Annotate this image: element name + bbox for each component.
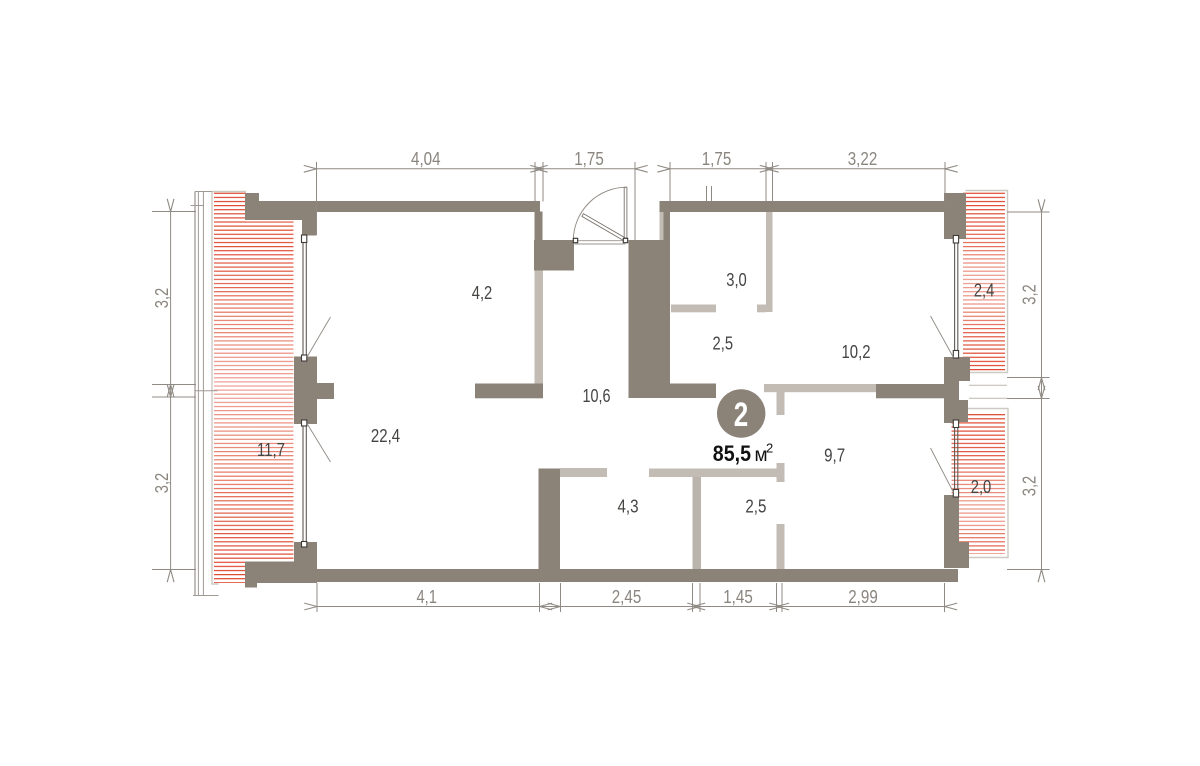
svg-text:4,2: 4,2 [472,282,493,303]
svg-text:2,0: 2,0 [971,476,992,497]
svg-text:4,3: 4,3 [618,496,639,517]
svg-text:85,5: 85,5 [713,441,751,466]
svg-text:3,22: 3,22 [848,148,878,169]
svg-text:1,45: 1,45 [723,586,753,607]
svg-text:3,2: 3,2 [151,473,172,494]
svg-text:9,7: 9,7 [824,445,845,466]
svg-text:10,6: 10,6 [583,385,611,406]
svg-text:11,7: 11,7 [257,439,285,460]
svg-text:3,2: 3,2 [151,288,172,309]
svg-text:2,5: 2,5 [713,333,734,354]
svg-text:3,2: 3,2 [1019,284,1040,305]
svg-text:4,1: 4,1 [416,586,437,607]
svg-text:4,04: 4,04 [411,148,441,169]
svg-text:3,2: 3,2 [1019,476,1040,497]
svg-text:2,45: 2,45 [612,586,642,607]
svg-text:10,2: 10,2 [842,341,871,362]
svg-text:2: 2 [734,396,749,434]
svg-text:2,99: 2,99 [848,586,878,607]
svg-text:22,4: 22,4 [371,425,400,446]
svg-text:2: 2 [766,440,773,455]
svg-text:2,4: 2,4 [974,280,995,301]
svg-text:1,75: 1,75 [702,148,732,169]
svg-text:3,0: 3,0 [726,269,747,290]
svg-text:2,5: 2,5 [745,496,766,517]
svg-text:1,75: 1,75 [574,148,604,169]
